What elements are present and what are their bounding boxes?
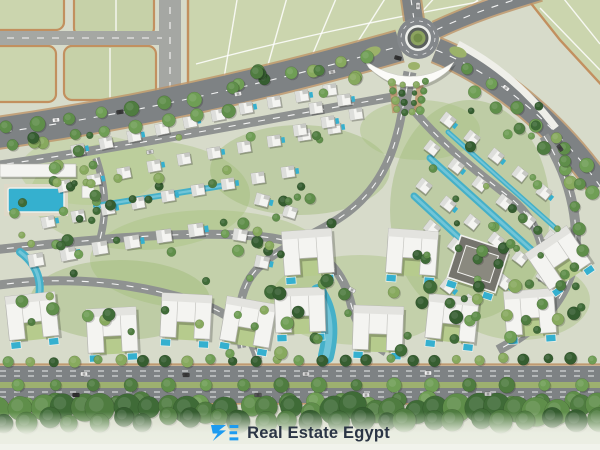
car [363, 393, 370, 397]
brand-logo: Real Estate Egypt [210, 422, 390, 444]
villa [28, 252, 47, 269]
car [73, 393, 80, 397]
villa [156, 228, 174, 245]
villa [349, 107, 365, 121]
car [116, 110, 123, 115]
villa-large [159, 293, 214, 349]
villa [92, 240, 111, 257]
villa [267, 95, 283, 110]
car [485, 392, 492, 396]
villa [309, 101, 325, 115]
brand-logo-text: Real Estate Egypt [247, 424, 390, 443]
car [255, 393, 262, 397]
villa [191, 183, 207, 198]
car [416, 3, 420, 10]
car [52, 118, 59, 123]
master-plan-canvas [0, 0, 600, 450]
villa [251, 171, 267, 185]
villa [232, 228, 249, 244]
villa [293, 123, 309, 137]
car [81, 372, 88, 376]
master-plan-image: Real Estate Egypt [0, 0, 600, 450]
real-estate-egypt-logo-icon [210, 422, 240, 444]
car [183, 373, 190, 377]
car [303, 372, 310, 376]
villa [177, 152, 193, 167]
villa [237, 140, 253, 155]
car [425, 371, 432, 375]
